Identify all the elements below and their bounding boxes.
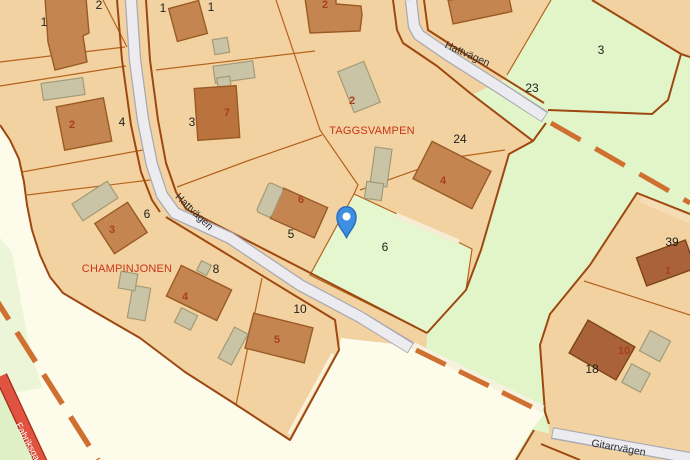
- svg-text:1: 1: [160, 1, 167, 15]
- svg-text:23: 23: [525, 81, 539, 95]
- svg-text:39: 39: [665, 235, 679, 249]
- svg-text:7: 7: [224, 107, 230, 119]
- svg-text:3: 3: [109, 224, 115, 236]
- svg-text:2: 2: [322, 0, 328, 11]
- svg-text:3: 3: [598, 43, 605, 57]
- svg-text:10: 10: [293, 302, 307, 316]
- svg-text:24: 24: [453, 132, 467, 146]
- svg-text:4: 4: [119, 115, 126, 129]
- svg-text:1: 1: [41, 15, 48, 29]
- svg-text:8: 8: [213, 262, 220, 276]
- svg-text:TAGGSVAMPEN: TAGGSVAMPEN: [329, 125, 415, 137]
- svg-text:CHAMPINJONEN: CHAMPINJONEN: [82, 263, 172, 275]
- svg-text:2: 2: [69, 119, 75, 131]
- svg-text:6: 6: [298, 194, 304, 206]
- svg-text:10: 10: [618, 345, 630, 357]
- svg-text:5: 5: [274, 334, 280, 346]
- svg-text:5: 5: [288, 227, 295, 241]
- svg-text:3: 3: [189, 115, 196, 129]
- svg-text:2: 2: [96, 0, 103, 12]
- svg-text:6: 6: [144, 207, 151, 221]
- svg-text:1: 1: [665, 265, 671, 277]
- svg-text:6: 6: [382, 240, 389, 254]
- svg-text:2: 2: [349, 95, 355, 107]
- svg-text:18: 18: [585, 362, 599, 376]
- svg-text:4: 4: [182, 291, 189, 303]
- svg-text:4: 4: [440, 175, 447, 187]
- svg-text:1: 1: [208, 0, 215, 14]
